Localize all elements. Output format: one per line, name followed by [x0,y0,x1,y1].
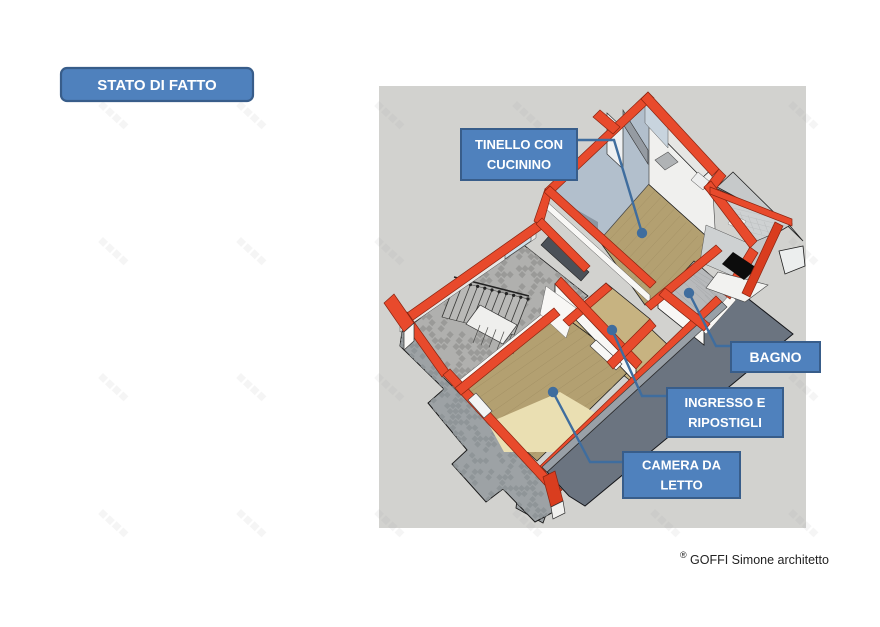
svg-text:TINELLO CON: TINELLO CON [475,137,563,152]
svg-text:CUCININO: CUCININO [487,157,551,172]
svg-text:LETTO: LETTO [660,478,702,493]
svg-text:RIPOSTIGLI: RIPOSTIGLI [688,415,762,430]
svg-text:STATO DI FATTO: STATO DI FATTO [97,77,217,94]
svg-text:INGRESSO E: INGRESSO E [685,395,766,410]
svg-text:GOFFI Simone architetto: GOFFI Simone architetto [690,553,829,567]
svg-text:BAGNO: BAGNO [749,349,801,365]
svg-text:CAMERA DA: CAMERA DA [642,458,722,473]
svg-text:®: ® [680,550,687,560]
